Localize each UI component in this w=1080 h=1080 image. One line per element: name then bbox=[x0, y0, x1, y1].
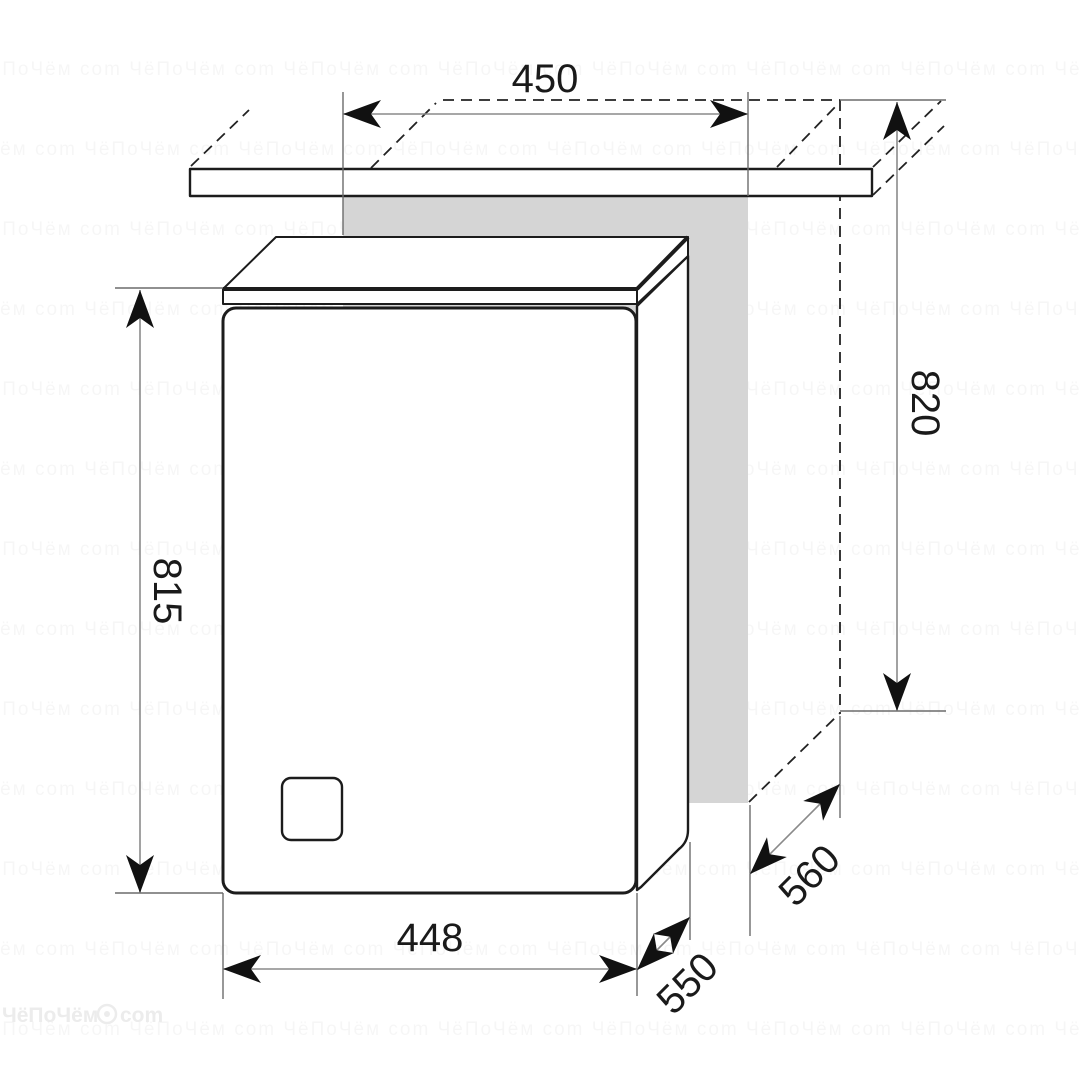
dim-label-niche-width: 450 bbox=[512, 57, 579, 101]
dim-label-appliance-width: 448 bbox=[397, 916, 464, 960]
door-bottom-square bbox=[282, 778, 342, 840]
lid-front-band bbox=[223, 289, 637, 304]
watermark-tile-row: ЧёПоЧём com ЧёПоЧём com ЧёПоЧём com ЧёПо… bbox=[0, 139, 1080, 160]
dishwasher-dimension-diagram: ЧёПоЧём com ЧёПоЧём com ЧёПоЧём com ЧёПо… bbox=[0, 0, 1080, 1080]
watermark-text-left: ЧёПоЧём bbox=[2, 1004, 98, 1027]
technical-drawing-canvas: ЧёПоЧём com ЧёПоЧём com ЧёПоЧём com ЧёПо… bbox=[0, 0, 1080, 1080]
dim-label-niche-depth: 560 bbox=[771, 837, 849, 915]
watermark-circle-dot bbox=[104, 1011, 110, 1017]
countertop bbox=[190, 169, 872, 196]
dimension-appliance-depth: 550 bbox=[627, 907, 727, 1023]
side-panel bbox=[637, 256, 688, 890]
brand-watermark: ЧёПоЧём com bbox=[2, 1004, 163, 1027]
watermark-text-right: com bbox=[120, 1004, 163, 1027]
dishwasher-body bbox=[223, 237, 688, 893]
watermark-tile-row: ЧёПоЧём com ЧёПоЧём com ЧёПоЧём com ЧёПо… bbox=[0, 939, 1080, 960]
dim-label-niche-height: 820 bbox=[903, 370, 947, 437]
dim-label-appliance-height: 815 bbox=[145, 558, 189, 625]
lid-top-face bbox=[223, 237, 688, 289]
